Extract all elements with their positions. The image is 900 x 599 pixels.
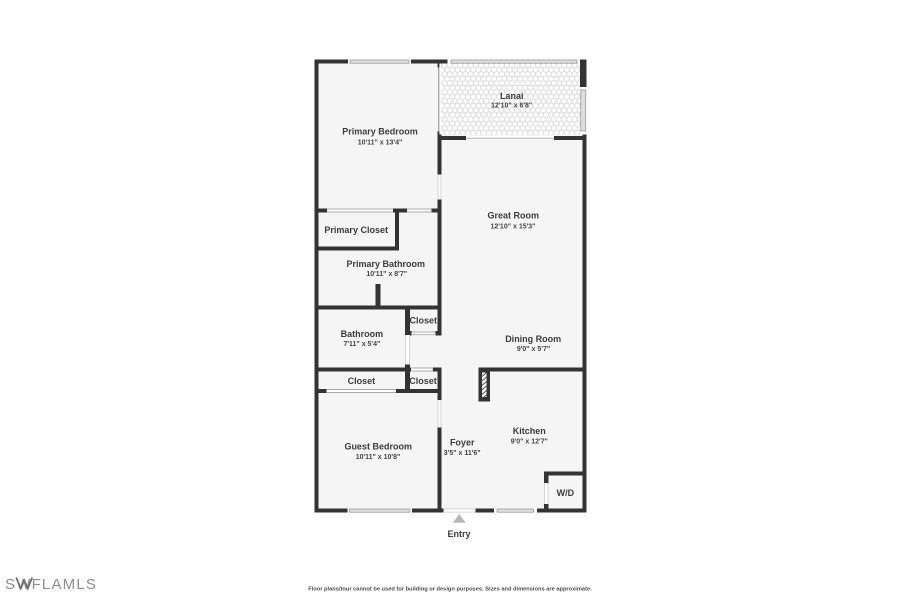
svg-text:Entry: Entry bbox=[447, 529, 470, 539]
svg-text:10'11" x 8'7": 10'11" x 8'7" bbox=[366, 271, 407, 278]
svg-text:Dining Room: Dining Room bbox=[505, 334, 561, 344]
svg-text:Primary Bedroom: Primary Bedroom bbox=[342, 126, 418, 136]
svg-text:Primary Closet: Primary Closet bbox=[324, 225, 388, 235]
svg-text:7'11" x 5'4": 7'11" x 5'4" bbox=[343, 341, 380, 348]
svg-text:Great Room: Great Room bbox=[488, 211, 540, 221]
svg-text:Floor plans/tour cannot be use: Floor plans/tour cannot be used for buil… bbox=[308, 587, 592, 593]
svg-text:10'11" x 13'4": 10'11" x 13'4" bbox=[358, 140, 403, 147]
svg-text:12'10" x 6'8": 12'10" x 6'8" bbox=[491, 103, 532, 110]
svg-text:10'11" x 10'8": 10'11" x 10'8" bbox=[356, 454, 401, 461]
svg-text:Kitchen: Kitchen bbox=[513, 426, 546, 436]
svg-text:Primary Bathroom: Primary Bathroom bbox=[347, 259, 426, 269]
svg-text:12'10" x 15'3": 12'10" x 15'3" bbox=[490, 224, 535, 231]
svg-text:Foyer: Foyer bbox=[450, 437, 475, 447]
svg-text:9'0" x 12'7": 9'0" x 12'7" bbox=[511, 439, 548, 446]
svg-text:Closet: Closet bbox=[409, 376, 437, 386]
svg-text:9'0" x 5'7": 9'0" x 5'7" bbox=[517, 346, 550, 353]
svg-text:3'5" x 11'6": 3'5" x 11'6" bbox=[444, 450, 481, 457]
svg-text:Lanai: Lanai bbox=[500, 91, 524, 101]
svg-text:W/D: W/D bbox=[557, 488, 575, 498]
svg-text:Closet: Closet bbox=[348, 376, 376, 386]
svg-text:Bathroom: Bathroom bbox=[341, 329, 384, 339]
svg-text:Guest Bedroom: Guest Bedroom bbox=[344, 442, 412, 452]
svg-text:Closet: Closet bbox=[410, 316, 438, 326]
